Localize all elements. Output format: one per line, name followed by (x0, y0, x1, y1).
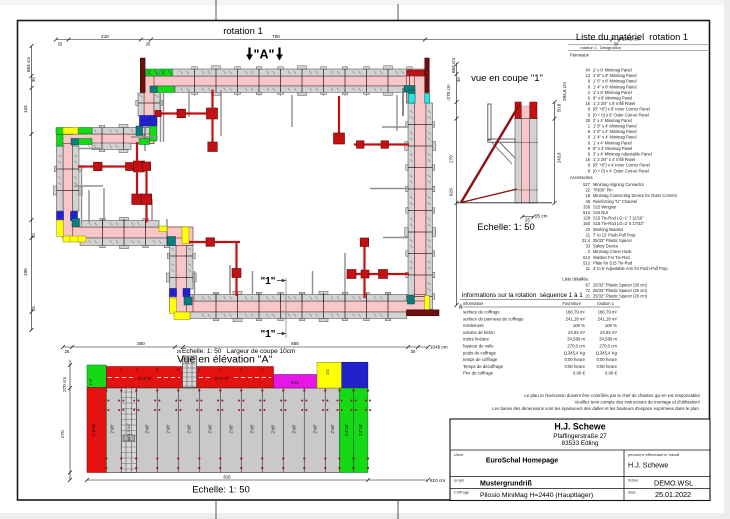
svg-text:72: 72 (585, 288, 590, 293)
svg-text:25: 25 (65, 349, 70, 354)
svg-text:-270 cm: -270 cm (446, 84, 451, 101)
svg-text:Pfaffingerstraße 27: Pfaffingerstraße 27 (553, 433, 607, 440)
svg-text:2'x8': 2'x8' (110, 424, 115, 433)
svg-text:684 cm: 684 cm (451, 58, 456, 73)
svg-text:Coffrage: Coffrage (454, 490, 470, 495)
svg-text:Washer For Tie-Rod: Washer For Tie-Rod (593, 255, 630, 260)
svg-text:1'4"x8': 1'4"x8' (358, 424, 363, 437)
svg-text:684 cm: 684 cm (26, 57, 31, 72)
svg-text:2' x 8' Minimag Panel: 2' x 8' Minimag Panel (593, 68, 632, 73)
svg-text:34,580 m: 34,580 m (599, 337, 617, 342)
svg-text:810 cm: 810 cm (430, 478, 445, 483)
svg-text:18: 18 (585, 193, 590, 198)
svg-text:(0 + 0) x 4' Outer Corner Pane: (0 + 0) x 4' Outer Corner Panel (593, 168, 649, 173)
svg-text:1' 3 3/4" x 4' Infill Panel: 1' 3 3/4" x 4' Infill Panel (593, 157, 635, 162)
svg-text:Liste du matériel rotation 1: Liste du matériel rotation 1 (576, 32, 688, 42)
svg-text:(8" +8") x 8' Inner Corner Pan: (8" +8") x 8' Inner Corner Panel (593, 107, 650, 112)
svg-text:information: information (463, 301, 484, 306)
svg-text:Le plan et l'exécution doivent: Le plan et l'exécution doivent être cont… (524, 393, 700, 398)
svg-text:100 %: 100 % (605, 323, 617, 328)
svg-text:EuroSchal Homepage: EuroSchal Homepage (486, 458, 558, 465)
svg-text:projet: projet (454, 478, 465, 483)
svg-text:25: 25 (58, 42, 63, 47)
svg-text:1'4"x8': 1'4"x8' (344, 424, 349, 437)
svg-text:1' 8" x 4' Minimag Panel: 1' 8" x 4' Minimag Panel (593, 124, 637, 129)
svg-text:S15 Wingnut: S15 Wingnut (593, 204, 617, 209)
svg-text:512: 512 (583, 210, 591, 215)
svg-text:client: client (454, 452, 464, 457)
svg-text:1' 4" x 4' Minimag Panel: 1' 4" x 4' Minimag Panel (593, 135, 637, 140)
svg-text:241,18 m²: 241,18 m² (598, 316, 618, 321)
svg-text:1' x 4' Minimag Panel: 1' x 4' Minimag Panel (593, 140, 632, 145)
svg-text:Minimag Aligning Connector: Minimag Aligning Connector (593, 182, 645, 187)
svg-text:1'-8"x8': 1'-8"x8' (91, 423, 96, 437)
svg-text:0:00 heure: 0:00 heure (564, 357, 585, 362)
svg-text:100 %: 100 % (573, 323, 585, 328)
svg-text:Echelle: 1: 50: Echelle: 1: 50 (192, 485, 250, 496)
svg-text:210: 210 (101, 34, 109, 39)
svg-text:rotation 1: rotation 1 (597, 301, 615, 306)
svg-text:2'x8': 2'x8' (330, 424, 335, 433)
svg-text:1045 cm: 1045 cm (430, 345, 448, 350)
svg-text:surface du panneau de coffrage: surface du panneau de coffrage (463, 316, 524, 321)
svg-text:H.J. Schewe: H.J. Schewe (628, 461, 668, 470)
svg-text:hauteur de voile: hauteur de voile (463, 344, 494, 349)
svg-text:25/32" Plastic Spacer (30 cm): 25/32" Plastic Spacer (30 cm) (593, 283, 648, 288)
svg-text:527: 527 (583, 182, 591, 187)
svg-text:Echelle: 1: 50: Echelle: 1: 50 (477, 222, 535, 233)
svg-text:"P300" Pin: "P300" Pin (593, 188, 613, 193)
svg-text:67: 67 (585, 283, 590, 288)
svg-text:16: 16 (585, 157, 590, 162)
svg-text:temps de coffrage: temps de coffrage (463, 357, 498, 362)
svg-text:24,82 m³: 24,82 m³ (568, 330, 586, 335)
svg-text:13: 13 (585, 73, 590, 78)
svg-text:128: 128 (583, 216, 591, 221)
svg-text:personne effectuant le travail: personne effectuant le travail (628, 452, 679, 457)
svg-text:760: 760 (272, 34, 280, 39)
svg-text:134: 134 (23, 105, 28, 113)
svg-text:informations sur la rotation: informations sur la rotation séquence 1 … (462, 292, 583, 299)
svg-text:Working Bracket: Working Bracket (593, 227, 624, 232)
svg-text:2'x: 2'x (325, 368, 330, 374)
svg-text:241,18 m²: 241,18 m² (566, 316, 586, 321)
svg-text:21: 21 (585, 294, 590, 299)
svg-text:Pilosio MiniMag H=2440 (Hauptl: Pilosio MiniMag H=2440 (Hauptlager) (480, 492, 593, 499)
svg-text:"1": "1" (260, 276, 275, 287)
svg-text:Accessoires: Accessoires (570, 175, 593, 180)
svg-text:22: 22 (585, 188, 590, 193)
svg-text:270,0 cm: 270,0 cm (567, 344, 585, 349)
svg-text:S15 Nut: S15 Nut (593, 210, 609, 215)
svg-text:Temps de décoffrage: Temps de décoffrage (463, 364, 504, 369)
svg-text:25: 25 (31, 306, 36, 311)
svg-text:30: 30 (456, 77, 461, 82)
svg-text:"1": "1" (260, 329, 275, 340)
svg-text:11: 11 (586, 266, 591, 271)
svg-text:16: 16 (585, 101, 590, 106)
svg-text:Safety Device: Safety Device (593, 244, 619, 249)
svg-text:Minimag Crane Hook: Minimag Crane Hook (593, 249, 632, 254)
svg-text:24,82 m³: 24,82 m³ (600, 330, 618, 335)
svg-text:0:00 heure: 0:00 heure (596, 364, 617, 369)
svg-text:4' to 5' Adjustable Arm for Pu: 4' to 5' Adjustable Arm for Push-Pull Pr… (593, 266, 668, 271)
svg-text:surface de coffrage: surface de coffrage (463, 310, 500, 315)
svg-text:20: 20 (31, 233, 36, 238)
svg-text:7' to 12' Push-Pull Prop: 7' to 12' Push-Pull Prop (593, 232, 636, 237)
svg-text:2'x8': 2'x8' (249, 424, 254, 433)
svg-text:2' x 4' Minimag Panel: 2' x 4' Minimag Panel (593, 118, 632, 123)
svg-text:mètre linéaire: mètre linéaire (463, 337, 490, 342)
svg-text:83533 Edling: 83533 Edling (562, 440, 599, 447)
svg-text:Prix du coffrage: Prix du coffrage (463, 371, 494, 376)
svg-text:Désignation: Désignation (600, 45, 621, 50)
svg-text:8" x 8' Minimag Panel: 8" x 8' Minimag Panel (593, 96, 632, 101)
svg-text:0:00 heure: 0:00 heure (596, 357, 617, 362)
svg-text:338: 338 (583, 204, 591, 209)
svg-text:2'x8': 2'x8' (228, 424, 233, 433)
svg-text:Minimag Connecting Device for: Minimag Connecting Device for Outer Corn… (593, 193, 677, 198)
svg-text:Liste détaillée: Liste détaillée (562, 277, 588, 282)
svg-text:x4' 1 3 3/4": x4' 1 3 3/4" (127, 422, 131, 440)
svg-text:270,0 cm: 270,0 cm (599, 344, 617, 349)
svg-text:810: 810 (224, 475, 232, 480)
svg-text:655: 655 (291, 341, 299, 346)
svg-text:Veuillez tenir compte des inst: Veuillez tenir compte des instructions d… (574, 400, 700, 405)
svg-text:270 cm: 270 cm (62, 377, 67, 392)
svg-text:(8" +8") x 4' Inner Corner Pan: (8" +8") x 4' Inner Corner Panel (593, 163, 650, 168)
svg-text:34,580 m: 34,580 m (567, 337, 585, 342)
svg-text:300: 300 (137, 341, 145, 346)
svg-text:629: 629 (449, 188, 454, 196)
svg-text:8'x1'-8": 8'x1'-8" (215, 376, 230, 381)
svg-text:vue en coupe "1": vue en coupe "1" (471, 73, 543, 84)
svg-text:1' 3 3/4" x 8' Infill Panel: 1' 3 3/4" x 8' Infill Panel (593, 101, 635, 106)
svg-text:fichier: fichier (628, 478, 639, 483)
svg-text:270: 270 (449, 155, 454, 163)
svg-text:2'x8': 2'x8' (291, 424, 296, 433)
svg-text:DEMO.WSL: DEMO.WSL (654, 479, 693, 488)
svg-text:Les bases des dimensions sont: Les bases des dimensions sont les épaiss… (492, 406, 700, 411)
svg-text:25.01.2022: 25.01.2022 (655, 490, 691, 499)
svg-text:Panneaux: Panneaux (570, 53, 590, 58)
svg-text:243,8: 243,8 (557, 152, 562, 163)
svg-text:2'x8': 2'x8' (144, 424, 149, 433)
svg-text:S15 Tie-Rod LG=1' 7 11/16": S15 Tie-Rod LG=1' 7 11/16" (593, 216, 644, 221)
svg-text:50,8: 50,8 (557, 103, 562, 112)
svg-text:512: 512 (583, 260, 591, 265)
svg-text:0:00 heure: 0:00 heure (564, 364, 585, 369)
svg-text:160: 160 (583, 221, 591, 226)
svg-text:2'x8': 2'x8' (207, 424, 212, 433)
svg-text:48: 48 (585, 199, 590, 204)
svg-text:1' 8" x 8' Minimag Panel: 1' 8" x 8' Minimag Panel (593, 73, 637, 78)
svg-text:11: 11 (586, 232, 591, 237)
svg-text:Mustergrundriß: Mustergrundriß (480, 481, 532, 488)
svg-text:180,79 m²: 180,79 m² (566, 310, 586, 315)
svg-text:512: 512 (583, 255, 591, 260)
svg-text:25 cm: 25 cm (535, 214, 548, 219)
svg-text:(0 + 0) x 8' Outer Corner Pane: (0 + 0) x 8' Outer Corner Panel (593, 112, 649, 117)
svg-text:date: date (628, 490, 637, 495)
svg-text:30: 30 (31, 77, 36, 82)
svg-text:H.J. Schewe: H.J. Schewe (554, 422, 605, 432)
svg-text:S15 Tie-Rod LG=2' 5 17/32": S15 Tie-Rod LG=2' 5 17/32" (593, 221, 645, 226)
svg-text:22: 22 (585, 227, 590, 232)
svg-text:2'x8': 2'x8' (312, 424, 317, 433)
svg-text:Plate for S15 Tie-Rod: Plate for S15 Tie-Rod (593, 260, 633, 265)
svg-text:20: 20 (146, 42, 151, 47)
svg-text:28: 28 (585, 118, 590, 123)
svg-text:25/32" Plastic Spacer (20 cm): 25/32" Plastic Spacer (20 cm) (593, 294, 648, 299)
svg-text:22,4: 22,4 (582, 238, 591, 243)
svg-text:1' 6" x 8' Minimag Panel: 1' 6" x 8' Minimag Panel (593, 79, 637, 84)
svg-text:"A": "A" (254, 48, 275, 62)
svg-text:Reinforcing "U" Channel: Reinforcing "U" Channel (593, 199, 637, 204)
svg-text:rotation 1: rotation 1 (580, 45, 597, 50)
svg-text:Vue en élévation "A": Vue en élévation "A" (177, 354, 272, 366)
svg-text:25/32" Plastic Spacer: 25/32" Plastic Spacer (593, 238, 633, 243)
svg-text:0,00 €: 0,00 € (573, 371, 586, 376)
svg-text:294,6 cm: 294,6 cm (562, 82, 567, 101)
svg-text:8" x 4' Minimag Panel: 8" x 4' Minimag Panel (593, 146, 632, 151)
svg-text:0,00 €: 0,00 € (605, 371, 618, 376)
svg-text:270: 270 (60, 430, 65, 438)
svg-text:1' 4" x 8' Minimag Panel: 1' 4" x 8' Minimag Panel (593, 84, 637, 89)
svg-text:2'x8': 2'x8' (270, 424, 275, 433)
svg-text:rotation 1: rotation 1 (223, 26, 263, 37)
svg-text:volume de béton: volume de béton (463, 330, 495, 335)
svg-text:11345,4 Kg: 11345,4 Kg (595, 350, 617, 355)
svg-text:11345,4 Kg: 11345,4 Kg (563, 350, 585, 355)
svg-text:2'x8': 2'x8' (165, 424, 170, 433)
svg-text:33: 33 (585, 244, 590, 249)
svg-text:84: 84 (585, 68, 590, 73)
svg-text:3'x1'-8": 3'x1'-8" (138, 376, 153, 381)
svg-text:1'-8": 1'-8" (88, 377, 93, 386)
svg-text:poids du coffrage: poids du coffrage (463, 350, 496, 355)
svg-text:1' x 8' Minimag Panel: 1' x 8' Minimag Panel (593, 90, 632, 95)
svg-text:4'x1': 4'x1' (291, 380, 300, 385)
svg-text:25/32" Plastic Spacer (25 cm): 25/32" Plastic Spacer (25 cm) (593, 288, 648, 293)
svg-text:30: 30 (411, 349, 416, 354)
svg-text:195: 195 (23, 268, 28, 276)
svg-text:2'x8': 2'x8' (186, 424, 191, 433)
svg-text:180,79 m²: 180,79 m² (598, 310, 618, 315)
svg-text:rendement: rendement (463, 323, 484, 328)
svg-text:1' 6" x 4' Minimag Panel: 1' 6" x 4' Minimag Panel (593, 129, 637, 134)
svg-text:3' x 4' Minimag Adjustable Pan: 3' x 4' Minimag Adjustable Panel (593, 152, 652, 157)
svg-text:Fourniture: Fourniture (562, 301, 581, 306)
